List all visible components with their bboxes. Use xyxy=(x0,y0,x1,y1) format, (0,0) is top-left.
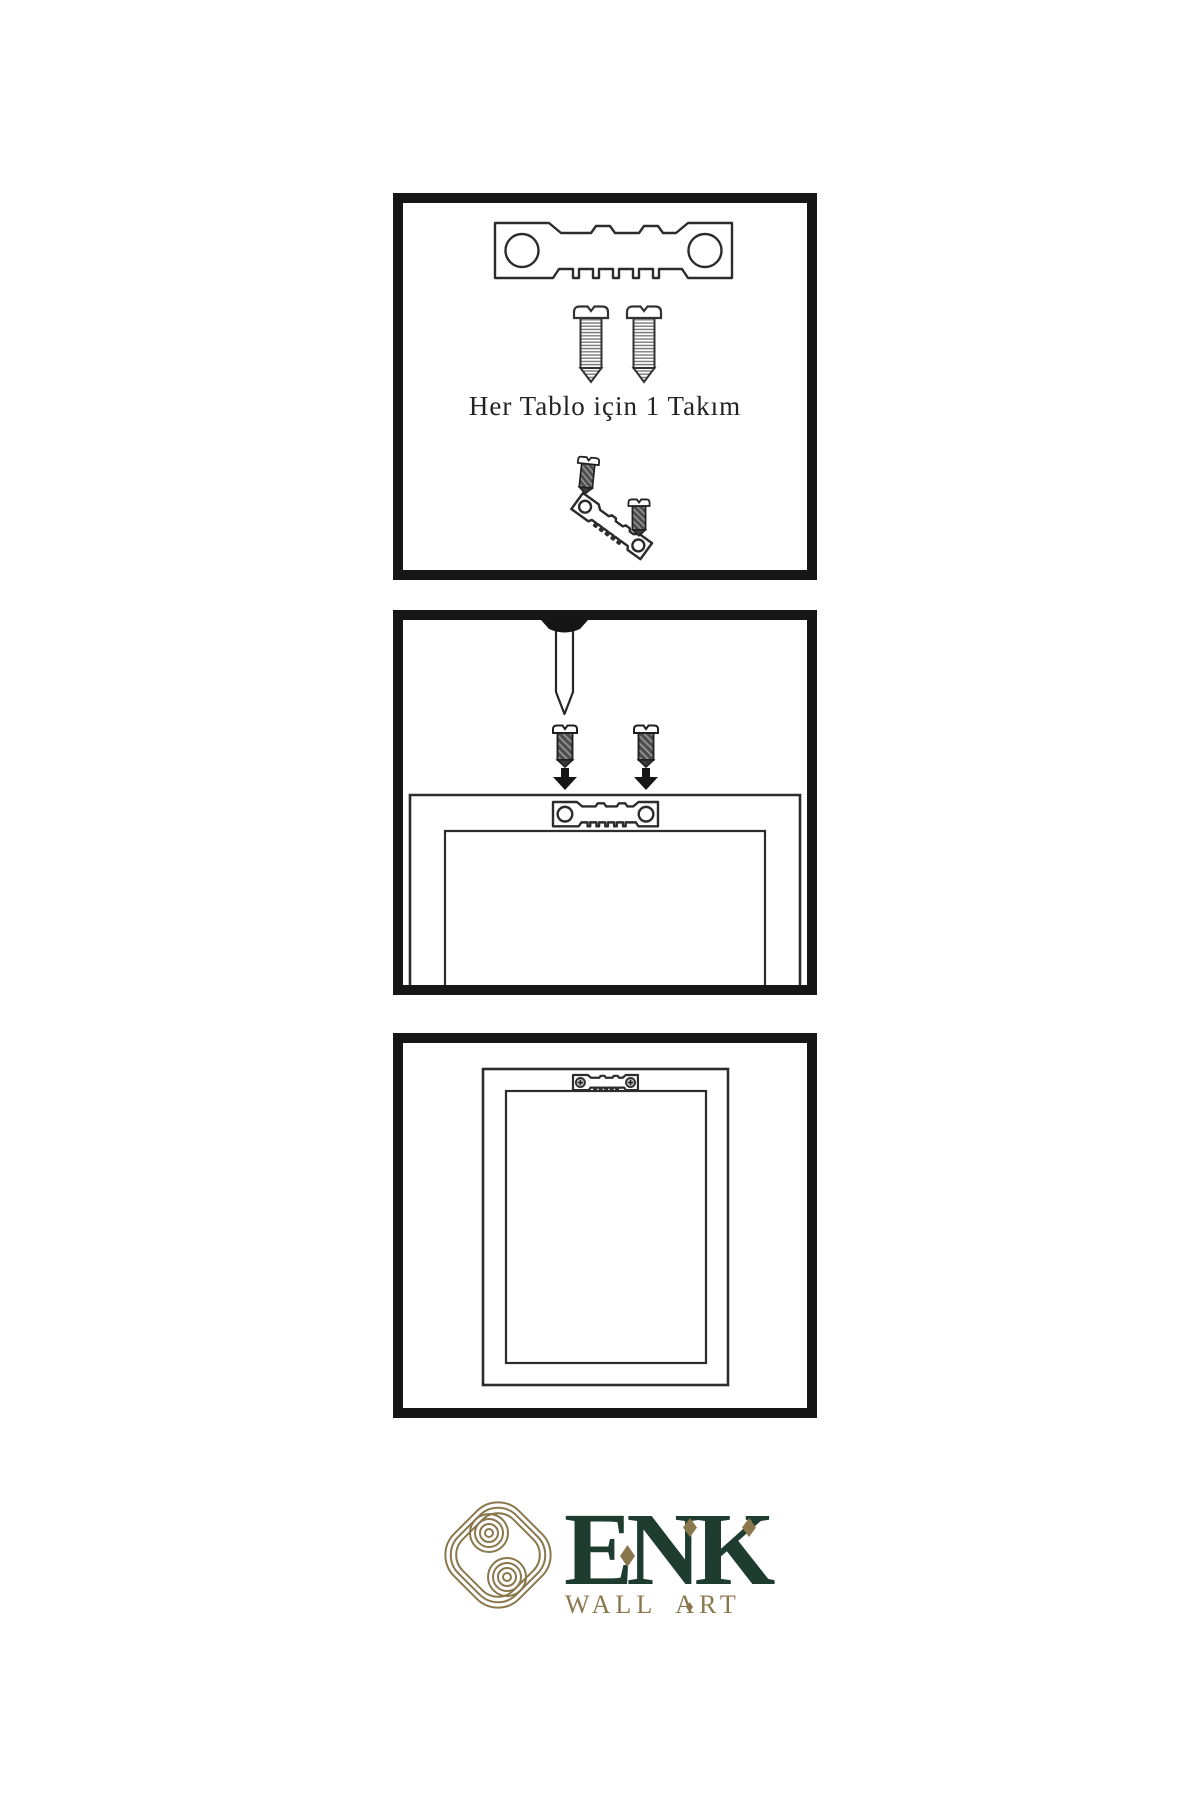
brand-tagline: WALL ART xyxy=(565,1592,741,1618)
down-arrow-icon xyxy=(553,768,577,790)
hardware-kit-illustration xyxy=(403,203,807,570)
panel-hung-frame xyxy=(393,1033,817,1418)
hang-step-illustration xyxy=(403,1043,807,1408)
instruction-sheet: Her Tablo için 1 Takım xyxy=(0,0,1200,1800)
mounted-hanger-with-screws-icon xyxy=(573,1075,638,1090)
panel-attach-hanger xyxy=(393,610,817,995)
frame-back-with-hanger-icon xyxy=(553,802,658,826)
kit-caption: Her Tablo için 1 Takım xyxy=(403,391,807,422)
down-arrow-icon xyxy=(634,768,658,790)
frame-back-icon xyxy=(483,1069,728,1385)
dark-screw-icon xyxy=(634,726,658,768)
attach-step-illustration xyxy=(403,620,807,985)
brand-logo: ENK WALL ART xyxy=(436,1482,786,1634)
panel-hardware-kit: Her Tablo için 1 Takım xyxy=(393,193,817,580)
celtic-knot-icon xyxy=(436,1484,560,1626)
tilted-hanger-with-screws-icon xyxy=(571,456,652,559)
screw-icon xyxy=(574,307,608,383)
sawtooth-hanger-icon xyxy=(495,223,732,278)
dark-screw-icon xyxy=(553,726,577,768)
screw-icon xyxy=(627,307,661,383)
wall-nail-icon xyxy=(541,620,588,714)
brand-name: ENK xyxy=(564,1498,768,1602)
